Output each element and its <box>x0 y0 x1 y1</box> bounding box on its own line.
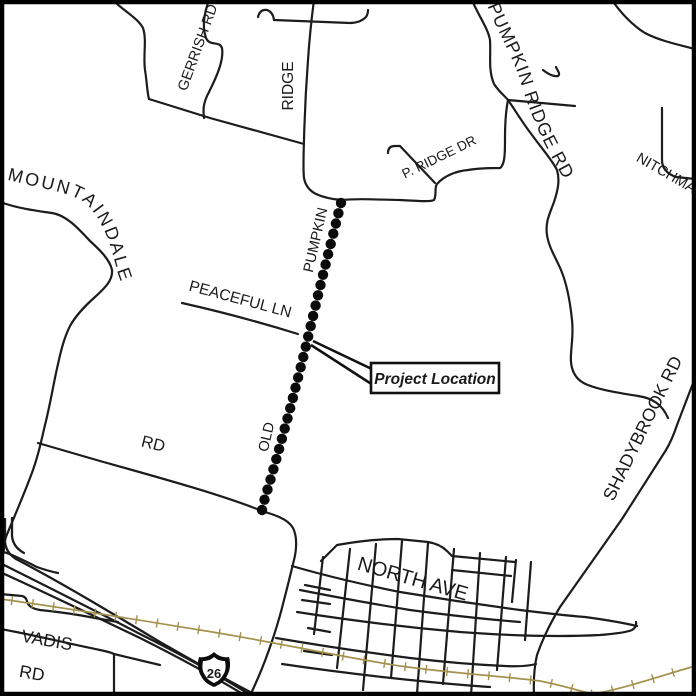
project-line-dot <box>301 342 311 352</box>
project-line-dot <box>262 484 272 494</box>
project-line-dot <box>265 474 275 484</box>
project-line-dot <box>274 444 284 454</box>
project-line-dot <box>331 218 341 228</box>
railroad-tick <box>468 669 469 678</box>
project-line-dot <box>310 300 320 310</box>
vicinity-map: Project Location 26 GERRISH RD RIDGE PUM… <box>0 0 696 696</box>
project-line-dot <box>288 393 298 403</box>
project-line-dot <box>277 434 287 444</box>
project-line-dot <box>296 362 306 372</box>
map-canvas: Project Location 26 GERRISH RD RIDGE PUM… <box>0 0 696 696</box>
project-line-dot <box>298 352 308 362</box>
callout-label: Project Location <box>374 371 495 388</box>
project-line-dot <box>293 372 303 382</box>
project-line-dot <box>320 259 330 269</box>
project-line-dot <box>282 413 292 423</box>
project-line-dot <box>259 495 269 505</box>
label-ridge: RIDGE <box>280 61 297 110</box>
project-line-dot <box>257 505 267 515</box>
map-background <box>0 0 696 696</box>
project-line-dot <box>280 423 290 433</box>
project-line-dot <box>308 311 318 321</box>
project-line-dot <box>303 331 313 341</box>
project-line-dot <box>268 464 278 474</box>
railroad-tick <box>447 667 448 676</box>
railroad-tick <box>488 671 489 680</box>
project-line-dot <box>315 280 325 290</box>
project-line-dot <box>328 229 338 239</box>
railroad-tick <box>509 673 510 682</box>
project-line-dot <box>285 403 295 413</box>
shield-number: 26 <box>207 666 221 681</box>
project-line-dot <box>306 321 316 331</box>
project-line-dot <box>323 249 333 259</box>
project-line-dot <box>336 198 346 208</box>
project-line-dot <box>313 290 323 300</box>
railroad-tick <box>530 675 531 684</box>
project-line-dot <box>318 270 328 280</box>
project-line-dot <box>333 208 343 218</box>
project-line-dot <box>290 383 300 393</box>
project-line-dot <box>271 454 281 464</box>
project-line-dot <box>326 239 336 249</box>
